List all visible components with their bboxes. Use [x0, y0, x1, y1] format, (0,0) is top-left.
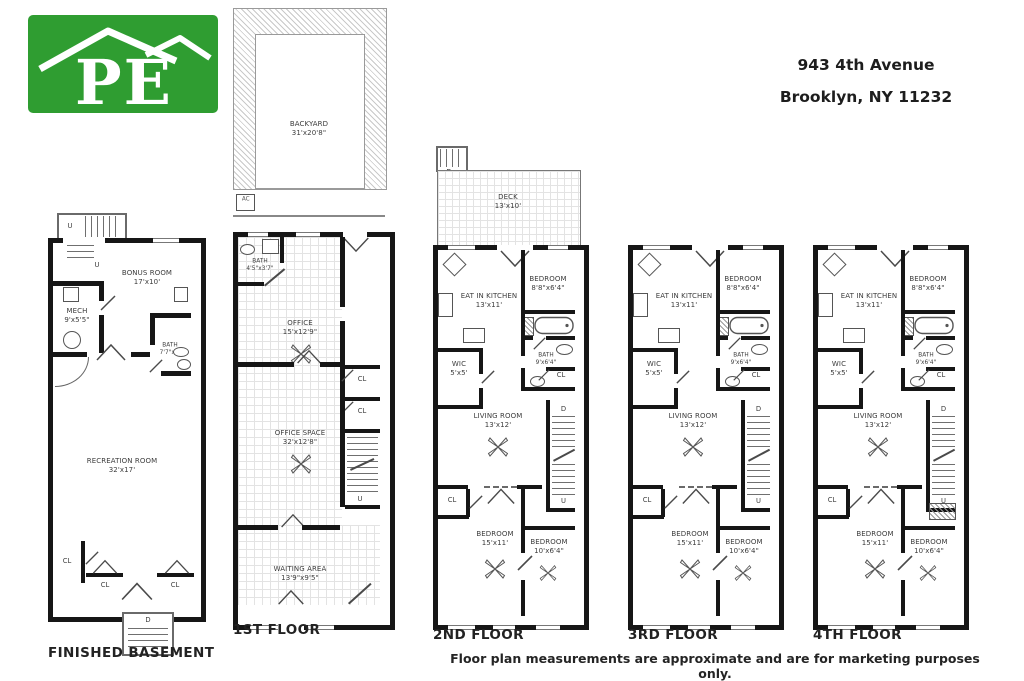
ceiling-fan-icon: [867, 436, 889, 458]
room-name: BACKYARD: [255, 120, 363, 129]
wall: [340, 321, 345, 395]
sink-icon: [556, 344, 573, 355]
room-label: BEDROOM 10'x6'4": [719, 538, 769, 557]
room-dims: 9'x6'4": [530, 359, 563, 367]
sink-icon: [751, 344, 768, 355]
bathtub-icon: [729, 316, 769, 335]
window: [448, 245, 475, 250]
stair-down-marker: D: [932, 405, 955, 413]
room-dims: 10'x6'4": [524, 547, 574, 556]
address-line-1: 943 4th Avenue: [766, 50, 966, 82]
floorplan-sheet: PE 943 4th Avenue Brooklyn, NY 11232 U U…: [0, 0, 1024, 681]
room-label: BATH 9'x6'4": [910, 352, 943, 367]
room-name: BEDROOM: [524, 538, 574, 547]
stairs: [552, 464, 575, 496]
wall: [238, 525, 278, 530]
stair-up-marker: U: [747, 497, 770, 505]
floor-plan-2nd-floor: EAT IN KITCHEN 13'x11' BEDROOM 8'8"x6'4"…: [433, 245, 585, 655]
wall: [818, 485, 848, 489]
wall: [521, 310, 575, 314]
window: [548, 245, 568, 250]
kitchen-counter: [658, 328, 680, 343]
door-swing: [517, 555, 533, 571]
door-swing: [913, 337, 926, 350]
room-label: RECREATION ROOM 32'x17': [82, 457, 162, 476]
closet-marker: CL: [550, 371, 572, 379]
wall: [741, 508, 770, 512]
room-label: MECH 9'x5'5": [55, 307, 99, 326]
wall: [741, 400, 745, 509]
room-dims: 4'5"x3'7": [244, 265, 277, 273]
window: [916, 625, 940, 630]
wall: [131, 352, 150, 357]
stairs: [747, 464, 770, 496]
tile-floor: [238, 237, 342, 605]
unit-outline: EAT IN KITCHEN 13'x11' BEDROOM 8'8"x6'4"…: [433, 245, 589, 630]
wall: [521, 387, 575, 391]
ceiling-fan-icon: [539, 564, 557, 582]
deck-area: D DECK 13'x10': [436, 146, 581, 246]
closet-marker: CL: [636, 496, 658, 504]
wall: [280, 237, 284, 263]
bathtub-icon: [914, 316, 954, 335]
room-label: OFFICE SPACE 32'x12'8": [260, 429, 340, 448]
room-label: WAITING AREA 13'9"x9'5": [260, 565, 340, 584]
room-name: WIC: [635, 360, 673, 369]
door-swing: [664, 495, 678, 509]
room-dims: 13'x11': [449, 301, 529, 310]
room-dims: 15'x12'9": [260, 328, 340, 337]
door-swing: [879, 250, 911, 268]
stairs: [932, 464, 955, 496]
door-swing: [95, 343, 127, 361]
room-dims: 9'x6'4": [910, 359, 943, 367]
unit-floorplan: EAT IN KITCHEN 13'x11' BEDROOM 8'8"x6'4"…: [813, 245, 965, 627]
wall-opening: [63, 238, 105, 243]
roof-ladder: [929, 503, 956, 520]
sink-icon: [240, 244, 255, 255]
wall: [633, 405, 674, 409]
door-swing: [91, 559, 119, 574]
room-dims: 8'8"x6'4": [523, 284, 573, 293]
door-swing: [296, 349, 322, 364]
spiral-stair: [55, 357, 89, 387]
sink-icon: [936, 344, 953, 355]
room-name: OFFICE SPACE: [260, 429, 340, 438]
kitchen-counter: [843, 328, 865, 343]
window: [153, 238, 179, 243]
wall: [521, 580, 525, 616]
room-label: EAT IN KITCHEN 13'x11': [829, 292, 909, 311]
wall: [53, 281, 103, 286]
wall: [340, 237, 345, 307]
door-swing: [712, 555, 728, 571]
closet-marker: CL: [57, 557, 77, 565]
room-label: EAT IN KITCHEN 13'x11': [449, 292, 529, 311]
door-swing: [469, 495, 483, 509]
room-dims: 17'x10': [106, 278, 188, 287]
window: [296, 232, 320, 237]
stair-down-marker: D: [141, 616, 155, 624]
wall: [926, 336, 955, 340]
ceiling-fan-icon: [682, 436, 704, 458]
room-name: BONUS ROOM: [106, 269, 188, 278]
room-dims: 8'8"x6'4": [718, 284, 768, 293]
wall: [716, 387, 770, 391]
unit-outline: EAT IN KITCHEN 13'x11' BEDROOM 8'8"x6'4"…: [813, 245, 969, 630]
wall: [345, 505, 380, 509]
logo-text: PE: [75, 46, 173, 113]
room-dims: 32'x12'8": [260, 438, 340, 447]
room-dims: 8'8"x6'4": [903, 284, 953, 293]
ceiling-fan-icon: [484, 558, 506, 580]
room-label: WIC 5'x5': [820, 360, 858, 379]
wall: [926, 400, 930, 509]
floor-plan-4th-floor: EAT IN KITCHEN 13'x11' BEDROOM 8'8"x6'4"…: [813, 245, 965, 655]
wall: [161, 371, 191, 376]
room-label: EAT IN KITCHEN 13'x11': [644, 292, 724, 311]
wall: [674, 388, 678, 409]
unit-floorplan: EAT IN KITCHEN 13'x11' BEDROOM 8'8"x6'4"…: [433, 245, 585, 627]
closet-marker: CL: [351, 407, 373, 415]
room-dims: 13'x11': [644, 301, 724, 310]
room-dims: 5'x5': [440, 369, 478, 378]
door-swing: [733, 369, 745, 381]
room-label: BATH 4'5"x3'7": [244, 258, 277, 273]
wall: [546, 400, 550, 509]
wall: [633, 515, 664, 519]
room-name: MECH: [55, 307, 99, 316]
room-dims: 10'x6'4": [904, 547, 954, 556]
door-swing: [149, 359, 163, 373]
wall: [238, 282, 264, 286]
room-name: WAITING AREA: [260, 565, 340, 574]
boiler-icon: [63, 331, 81, 349]
wall: [521, 314, 525, 356]
room-name: BEDROOM: [523, 275, 573, 284]
wall: [859, 388, 863, 409]
room-name: BEDROOM: [718, 275, 768, 284]
room-name: BEDROOM: [904, 538, 954, 547]
room-dims: 32'x17': [82, 466, 162, 475]
room-name: BEDROOM: [903, 275, 953, 284]
property-address: 943 4th Avenue Brooklyn, NY 11232: [766, 50, 966, 114]
wall: [633, 348, 674, 352]
room-name: EAT IN KITCHEN: [829, 292, 909, 301]
closet-marker: CL: [745, 371, 767, 379]
entry-door-swing: [120, 581, 154, 601]
room-dims: 13'x12': [838, 421, 918, 430]
pe-house-logo: PE: [28, 15, 218, 113]
ceiling-fan-icon: [290, 453, 312, 475]
wall: [340, 395, 345, 507]
floor-plan-1st-floor: BACKYARD 31'x20'8" AC BATH 4'5"x3'7": [231, 8, 387, 668]
wall: [716, 580, 720, 616]
basement-outline: U BONUS ROOM 17'x10' MECH 9'x5'5" BATH 7…: [48, 238, 206, 622]
wall: [238, 362, 294, 367]
wall: [150, 313, 191, 318]
door-swing: [342, 237, 370, 253]
closet-marker: CL: [165, 581, 185, 589]
interior-stair: [67, 245, 94, 263]
room-dims: 13'9"x9'5": [260, 574, 340, 583]
room-name: DECK: [458, 193, 558, 202]
corner-shelf: [822, 252, 846, 276]
backyard-area: [255, 34, 365, 189]
stair-arrow: [933, 449, 955, 462]
door-swing: [897, 555, 913, 571]
electrical-panel: [63, 287, 79, 302]
stairs: [747, 416, 770, 448]
stair-up-marker: U: [552, 497, 575, 505]
door-swing: [866, 487, 896, 505]
wall: [633, 485, 663, 489]
ac-label: AC: [242, 196, 250, 203]
unit-floorplan: EAT IN KITCHEN 13'x11' BEDROOM 8'8"x6'4"…: [628, 245, 780, 627]
room-dims: 10'x6'4": [719, 547, 769, 556]
door-swing: [100, 295, 116, 311]
stair-down-marker: D: [552, 405, 575, 413]
stair-up-marker: U: [63, 222, 77, 230]
room-name: WIC: [440, 360, 478, 369]
floor-title-4th: 4TH FLOOR: [813, 627, 902, 643]
wall: [818, 405, 859, 409]
closet-marker: CL: [95, 581, 115, 589]
door-swing: [277, 589, 305, 605]
utility-panel: [174, 287, 188, 302]
room-name: EAT IN KITCHEN: [644, 292, 724, 301]
stair-arrow: [748, 449, 770, 462]
door-swing: [481, 370, 495, 384]
room-dims: 5'x5': [820, 369, 858, 378]
stair-treads: [440, 149, 463, 167]
stair-down-marker: D: [747, 405, 770, 413]
door-swing: [163, 559, 191, 574]
wall: [716, 526, 770, 530]
room-dims: 9'x6'4": [725, 359, 758, 367]
stairs: [552, 416, 575, 448]
room-dims: 31'x20'8": [255, 129, 363, 138]
wall: [901, 310, 955, 314]
door-swing: [681, 487, 711, 505]
floor-title-1st: 1ST FLOOR: [233, 622, 320, 638]
window: [828, 245, 855, 250]
wall: [438, 405, 479, 409]
wall: [741, 336, 770, 340]
room-label: BEDROOM 8'8"x6'4": [523, 275, 573, 294]
wall: [345, 429, 380, 433]
wall: [438, 348, 479, 352]
wall: [901, 314, 905, 356]
wall: [818, 348, 859, 352]
corner-shelf: [637, 252, 661, 276]
room-dims: 13'x11': [829, 301, 909, 310]
stairs: [347, 437, 378, 493]
door-swing: [533, 337, 546, 350]
room-label: BEDROOM 8'8"x6'4": [903, 275, 953, 294]
window: [928, 245, 948, 250]
ceiling-fan-icon: [734, 564, 752, 582]
deck-surface: DECK 13'x10': [437, 170, 581, 248]
window: [536, 625, 560, 630]
wall: [901, 387, 955, 391]
room-label: BEDROOM 10'x6'4": [524, 538, 574, 557]
room-label: BATH 9'x6'4": [725, 352, 758, 367]
room-label: BATH 9'x6'4": [530, 352, 563, 367]
room-name: LIVING ROOM: [838, 412, 918, 421]
stair-up-marker: U: [91, 261, 103, 269]
door-swing: [486, 487, 516, 505]
wall: [716, 314, 720, 356]
ceiling-fan-icon: [487, 436, 509, 458]
ceiling-fan-icon: [919, 564, 937, 582]
sink-icon: [173, 347, 189, 357]
door-swing: [918, 369, 930, 381]
bathtub-icon: [534, 316, 574, 335]
wall: [901, 526, 955, 530]
wall: [150, 313, 155, 345]
floor-plan-basement: U U BONUS ROOM 17'x10' MECH 9'x5'5": [48, 213, 200, 681]
room-name: WIC: [820, 360, 858, 369]
unit-outline: EAT IN KITCHEN 13'x11' BEDROOM 8'8"x6'4"…: [628, 245, 784, 630]
room-name: OFFICE: [260, 319, 340, 328]
door-swing: [849, 495, 863, 509]
room-label: WIC 5'x5': [440, 360, 478, 379]
kitchen-counter: [463, 328, 485, 343]
address-line-2: Brooklyn, NY 11232: [766, 82, 966, 114]
wall: [546, 508, 575, 512]
stair-arrow: [553, 449, 575, 462]
room-dims: 13'x12': [653, 421, 733, 430]
floor-title-2nd: 2ND FLOOR: [433, 627, 524, 643]
ac-unit: AC: [236, 194, 255, 211]
flue-box: [262, 239, 279, 254]
wall: [320, 362, 340, 367]
floor-title-basement: FINISHED BASEMENT: [48, 645, 198, 661]
door-swing: [341, 369, 354, 382]
window: [743, 245, 763, 250]
room-name: LIVING ROOM: [653, 412, 733, 421]
room-name: EAT IN KITCHEN: [449, 292, 529, 301]
door-swing: [676, 370, 690, 384]
first-floor-outline: BATH 4'5"x3'7" OFFICE 15'x12'9" CL CL: [233, 232, 395, 630]
room-label: DECK 13'x10': [458, 193, 558, 212]
door-swing: [499, 250, 531, 268]
wall: [818, 515, 849, 519]
wall: [302, 525, 340, 530]
room-label: LIVING ROOM 13'x12': [653, 412, 733, 431]
closet-marker: CL: [441, 496, 463, 504]
room-dims: 13'x12': [458, 421, 538, 430]
room-label: BONUS ROOM 17'x10': [106, 269, 188, 288]
room-label: LIVING ROOM 13'x12': [838, 412, 918, 431]
room-name: BATH: [244, 258, 277, 266]
stair-up-marker: U: [350, 495, 370, 503]
room-dims: 9'x5'5": [55, 316, 99, 325]
closet-marker: CL: [351, 375, 373, 383]
wall: [479, 388, 483, 409]
disclaimer-text: Floor plan measurements are approximate …: [440, 651, 990, 681]
window: [731, 625, 755, 630]
ceiling-fan-icon: [679, 558, 701, 580]
corner-shelf: [442, 252, 466, 276]
door-swing: [538, 369, 550, 381]
wall: [546, 336, 575, 340]
room-name: BEDROOM: [719, 538, 769, 547]
fence-line: [233, 215, 385, 217]
wall: [521, 526, 575, 530]
stair-treads: [85, 216, 121, 237]
stairs: [932, 416, 955, 448]
wall: [716, 310, 770, 314]
toilet-icon: [177, 359, 191, 370]
room-dims: 5'x5': [635, 369, 673, 378]
wall: [901, 580, 905, 616]
room-label: OFFICE 15'x12'9": [260, 319, 340, 338]
closet-marker: CL: [821, 496, 843, 504]
window: [248, 232, 268, 237]
door-swing: [694, 250, 726, 268]
closet-marker: CL: [930, 371, 952, 379]
door-swing: [861, 370, 875, 384]
room-label: LIVING ROOM 13'x12': [458, 412, 538, 431]
room-name: LIVING ROOM: [458, 412, 538, 421]
floor-plan-3rd-floor: EAT IN KITCHEN 13'x11' BEDROOM 8'8"x6'4"…: [628, 245, 780, 655]
room-label: BACKYARD 31'x20'8": [255, 120, 363, 139]
room-dims: 13'x10': [458, 202, 558, 211]
wall: [438, 515, 469, 519]
door-swing: [728, 337, 741, 350]
floor-title-3rd: 3RD FLOOR: [628, 627, 718, 643]
ceiling-fan-icon: [864, 558, 886, 580]
room-label: BEDROOM 10'x6'4": [904, 538, 954, 557]
window: [643, 245, 670, 250]
room-label: WIC 5'x5': [635, 360, 673, 379]
room-label: BEDROOM 8'8"x6'4": [718, 275, 768, 294]
room-name: RECREATION ROOM: [82, 457, 162, 466]
wall: [438, 485, 468, 489]
